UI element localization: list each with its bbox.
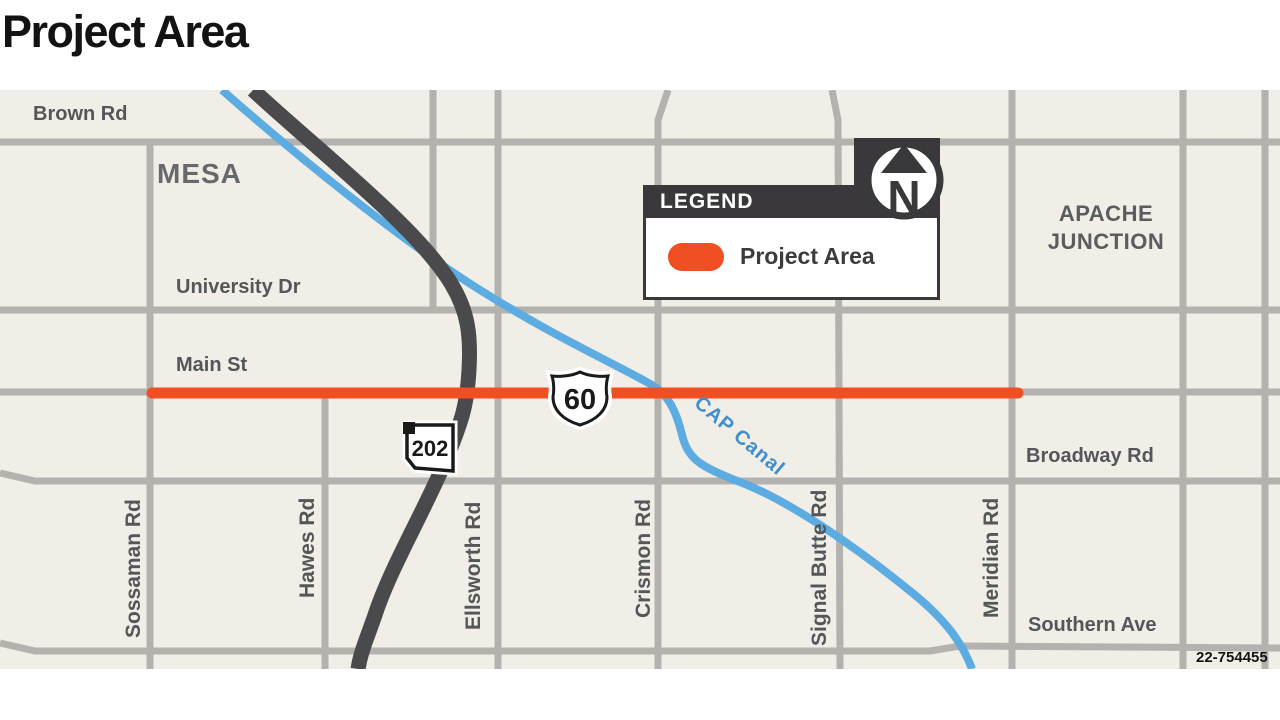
label-city-mesa: MESA [157, 158, 242, 190]
page-title: Project Area [2, 6, 247, 58]
label-sossaman-rd: Sossaman Rd [122, 499, 146, 638]
legend-item-label: Project Area [740, 243, 875, 270]
freeway-202-line [253, 90, 470, 669]
road-broadway-rd [0, 473, 1280, 481]
us-60-shield-number: 60 [564, 384, 596, 416]
label-broadway-rd: Broadway Rd [1026, 445, 1154, 468]
north-arrow-icon: N [858, 134, 950, 226]
label-crismon-rd: Crismon Rd [632, 499, 656, 618]
legend-body: Project Area [643, 218, 940, 300]
figure-number: 22-754455 [1196, 649, 1268, 666]
road-southern-ave [0, 643, 1280, 651]
page: { "title": "Project Area", "map": { "cit… [0, 0, 1280, 720]
label-southern-ave: Southern Ave [1028, 614, 1157, 637]
label-main-st: Main St [176, 354, 247, 377]
label-brown-rd: Brown Rd [33, 103, 127, 126]
label-university-dr: University Dr [176, 276, 301, 299]
label-meridian-rd: Meridian Rd [980, 498, 1004, 618]
label-ellsworth-rd: Ellsworth Rd [462, 502, 486, 630]
loop-202-shield-number: 202 [412, 436, 449, 461]
label-apache-line2: JUNCTION [1038, 228, 1174, 256]
label-hawes-rd: Hawes Rd [296, 498, 320, 598]
us-60-shield-icon: 60 [543, 366, 617, 430]
loop-202-shield-corner [403, 422, 415, 434]
loop-202-shield-icon: 202 [399, 420, 461, 478]
label-signal-butte-rd: Signal Butte Rd [808, 490, 832, 646]
label-apache-line1: APACHE [1038, 200, 1174, 228]
label-city-apache-junction: APACHE JUNCTION [1038, 200, 1174, 256]
north-letter: N [887, 171, 920, 223]
project-area-map: Brown Rd MESA University Dr Main St Broa… [0, 90, 1280, 669]
project-area-swatch [668, 243, 724, 271]
